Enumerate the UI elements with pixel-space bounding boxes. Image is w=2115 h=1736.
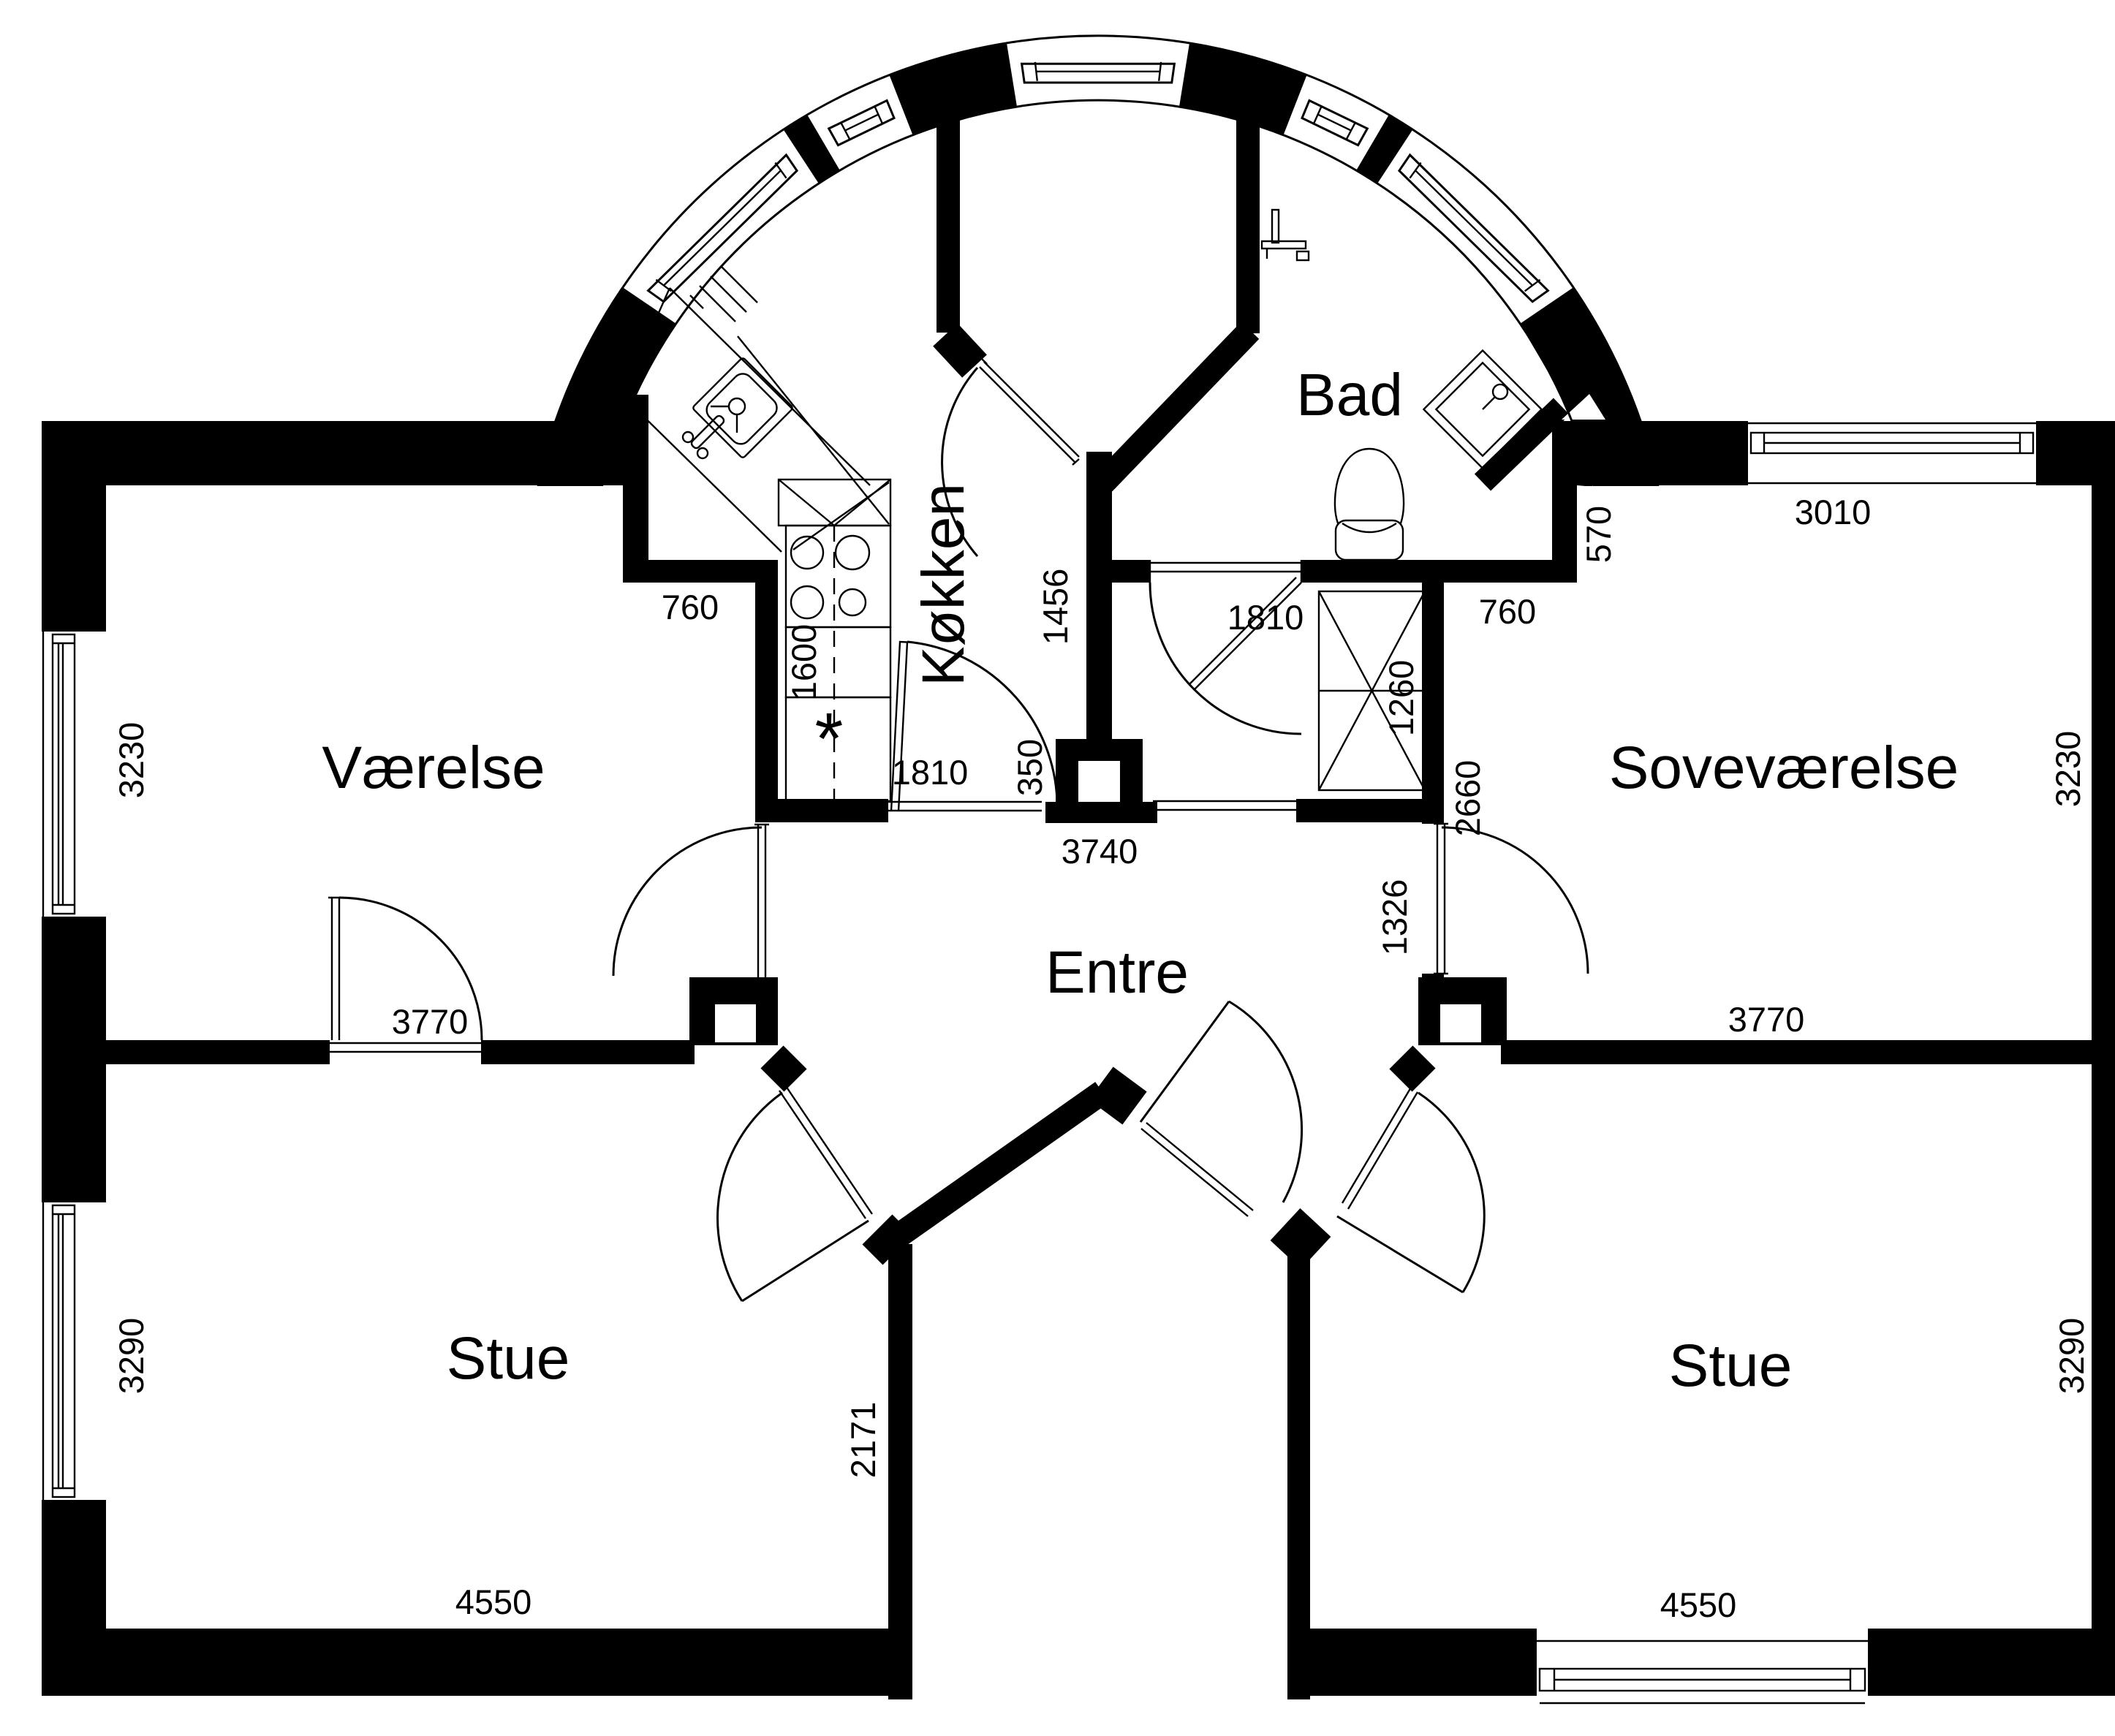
svg-text:3740: 3740	[1062, 832, 1138, 871]
svg-text:1810: 1810	[1227, 598, 1304, 637]
svg-text:Stue: Stue	[1669, 1333, 1793, 1399]
svg-text:760: 760	[1479, 592, 1536, 631]
svg-text:1600: 1600	[784, 624, 823, 701]
svg-text:760: 760	[662, 588, 719, 626]
svg-text:3010: 3010	[1795, 493, 1872, 531]
svg-text:2171: 2171	[844, 1402, 882, 1479]
svg-text:1260: 1260	[1382, 660, 1420, 737]
svg-text:Stue: Stue	[447, 1325, 570, 1392]
svg-text:Soveværelse: Soveværelse	[1609, 735, 1959, 801]
svg-text:Entre: Entre	[1045, 939, 1189, 1006]
svg-text:4550: 4550	[1660, 1585, 1737, 1624]
svg-text:1456: 1456	[1036, 569, 1075, 645]
svg-text:3230: 3230	[2048, 731, 2087, 808]
svg-text:3290: 3290	[112, 1318, 151, 1395]
svg-text:*: *	[815, 698, 844, 780]
svg-text:3770: 3770	[392, 1002, 469, 1041]
svg-text:Køkken: Køkken	[910, 483, 977, 686]
svg-text:3770: 3770	[1728, 1000, 1805, 1039]
svg-text:1326: 1326	[1375, 879, 1414, 956]
svg-text:3230: 3230	[112, 722, 151, 799]
svg-text:570: 570	[1579, 506, 1618, 563]
svg-text:Værelse: Værelse	[322, 735, 545, 801]
svg-text:4550: 4550	[455, 1583, 532, 1621]
svg-text:3290: 3290	[2052, 1318, 2091, 1395]
svg-text:Bad: Bad	[1296, 362, 1403, 428]
svg-text:2660: 2660	[1448, 760, 1487, 837]
svg-text:350: 350	[1010, 739, 1049, 796]
svg-text:1810: 1810	[892, 753, 969, 792]
